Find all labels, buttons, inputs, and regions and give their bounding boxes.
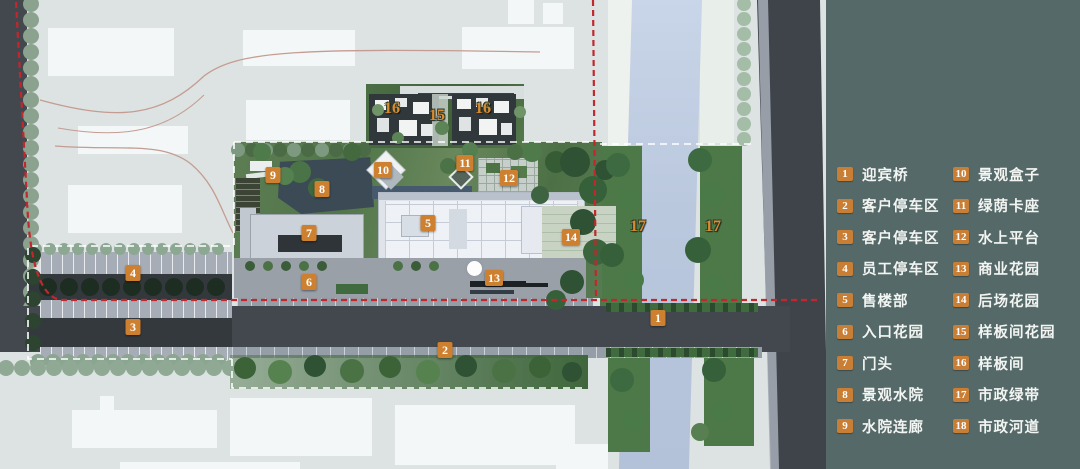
- legend-number: 3: [837, 230, 853, 244]
- legend-label: 迎宾桥: [862, 164, 909, 185]
- legend-label: 门头: [862, 353, 893, 374]
- legend-number: 13: [953, 262, 969, 276]
- map-marker-1: 1: [651, 310, 666, 326]
- legend-item-11: 11绿荫卡座: [953, 199, 1056, 213]
- legend-item-14: 14后场花园: [953, 293, 1056, 307]
- map-marker-17: 17: [630, 218, 646, 236]
- legend-item-18: 18市政河道: [953, 419, 1056, 433]
- legend-label: 市政绿带: [978, 384, 1040, 405]
- map-marker-8: 8: [315, 181, 330, 197]
- legend-number: 11: [953, 199, 969, 213]
- map-marker-4: 4: [126, 265, 141, 281]
- legend-item-15: 15样板间花园: [953, 325, 1056, 339]
- site-plan: 12345678910111213141516161717 1迎宾桥2客户停车区…: [0, 0, 1080, 469]
- legend-number: 1: [837, 167, 853, 181]
- legend-number: 14: [953, 293, 969, 307]
- legend-item-9: 9水院连廊: [837, 419, 940, 433]
- legend-item-5: 5售楼部: [837, 293, 940, 307]
- legend-number: 9: [837, 419, 853, 433]
- legend-item-13: 13商业花园: [953, 262, 1056, 276]
- map-marker-16: 16: [475, 100, 491, 118]
- map-marker-9: 9: [266, 167, 281, 183]
- legend-number: 4: [837, 262, 853, 276]
- legend-number: 16: [953, 356, 969, 370]
- legend-item-2: 2客户停车区: [837, 199, 940, 213]
- map-marker-2: 2: [438, 342, 453, 358]
- map-marker-17: 17: [705, 218, 721, 236]
- legend-item-12: 12水上平台: [953, 230, 1056, 244]
- legend-item-7: 7门头: [837, 356, 940, 370]
- map-marker-12: 12: [500, 170, 518, 186]
- legend-label: 样板间花园: [978, 321, 1056, 342]
- map-marker-11: 11: [456, 155, 473, 171]
- legend-number: 5: [837, 293, 853, 307]
- legend-item-16: 16样板间: [953, 356, 1056, 370]
- legend-item-8: 8景观水院: [837, 388, 940, 402]
- legend-number: 12: [953, 230, 969, 244]
- legend-item-6: 6入口花园: [837, 325, 940, 339]
- legend-label: 市政河道: [978, 416, 1040, 437]
- legend-column-2: 10景观盒子11绿荫卡座12水上平台13商业花园14后场花园15样板间花园16样…: [953, 167, 1056, 433]
- legend-label: 员工停车区: [862, 258, 940, 279]
- legend-item-10: 10景观盒子: [953, 167, 1056, 181]
- legend-label: 样板间: [978, 353, 1025, 374]
- legend-item-3: 3客户停车区: [837, 230, 940, 244]
- legend-number: 7: [837, 356, 853, 370]
- legend-label: 售楼部: [862, 290, 909, 311]
- legend-label: 客户停车区: [862, 195, 940, 216]
- legend-number: 15: [953, 325, 969, 339]
- legend-column-1: 1迎宾桥2客户停车区3客户停车区4员工停车区5售楼部6入口花园7门头8景观水院9…: [837, 167, 940, 433]
- legend-label: 绿荫卡座: [978, 195, 1040, 216]
- legend-label: 客户停车区: [862, 227, 940, 248]
- legend-panel: 1迎宾桥2客户停车区3客户停车区4员工停车区5售楼部6入口花园7门头8景观水院9…: [826, 0, 1080, 469]
- legend-item-1: 1迎宾桥: [837, 167, 940, 181]
- legend-label: 水上平台: [978, 227, 1040, 248]
- legend-item-17: 17市政绿带: [953, 388, 1056, 402]
- map-marker-3: 3: [126, 319, 141, 335]
- legend-label: 景观盒子: [978, 164, 1040, 185]
- map-marker-13: 13: [485, 270, 503, 286]
- legend-number: 8: [837, 388, 853, 402]
- map-marker-16: 16: [384, 100, 400, 118]
- legend-label: 后场花园: [978, 290, 1040, 311]
- legend-number: 18: [953, 419, 969, 433]
- legend-number: 10: [953, 167, 969, 181]
- legend-number: 2: [837, 199, 853, 213]
- legend-number: 6: [837, 325, 853, 339]
- map-marker-10: 10: [374, 162, 392, 178]
- map-marker-6: 6: [302, 274, 317, 290]
- legend-label: 水院连廊: [862, 416, 924, 437]
- legend-label: 入口花园: [862, 321, 924, 342]
- legend-item-4: 4员工停车区: [837, 262, 940, 276]
- legend-number: 17: [953, 388, 969, 402]
- legend-label: 商业花园: [978, 258, 1040, 279]
- map-marker-15: 15: [429, 107, 445, 125]
- legend-label: 景观水院: [862, 384, 924, 405]
- map-marker-14: 14: [562, 229, 580, 245]
- map-marker-5: 5: [421, 215, 436, 231]
- map-marker-7: 7: [302, 225, 317, 241]
